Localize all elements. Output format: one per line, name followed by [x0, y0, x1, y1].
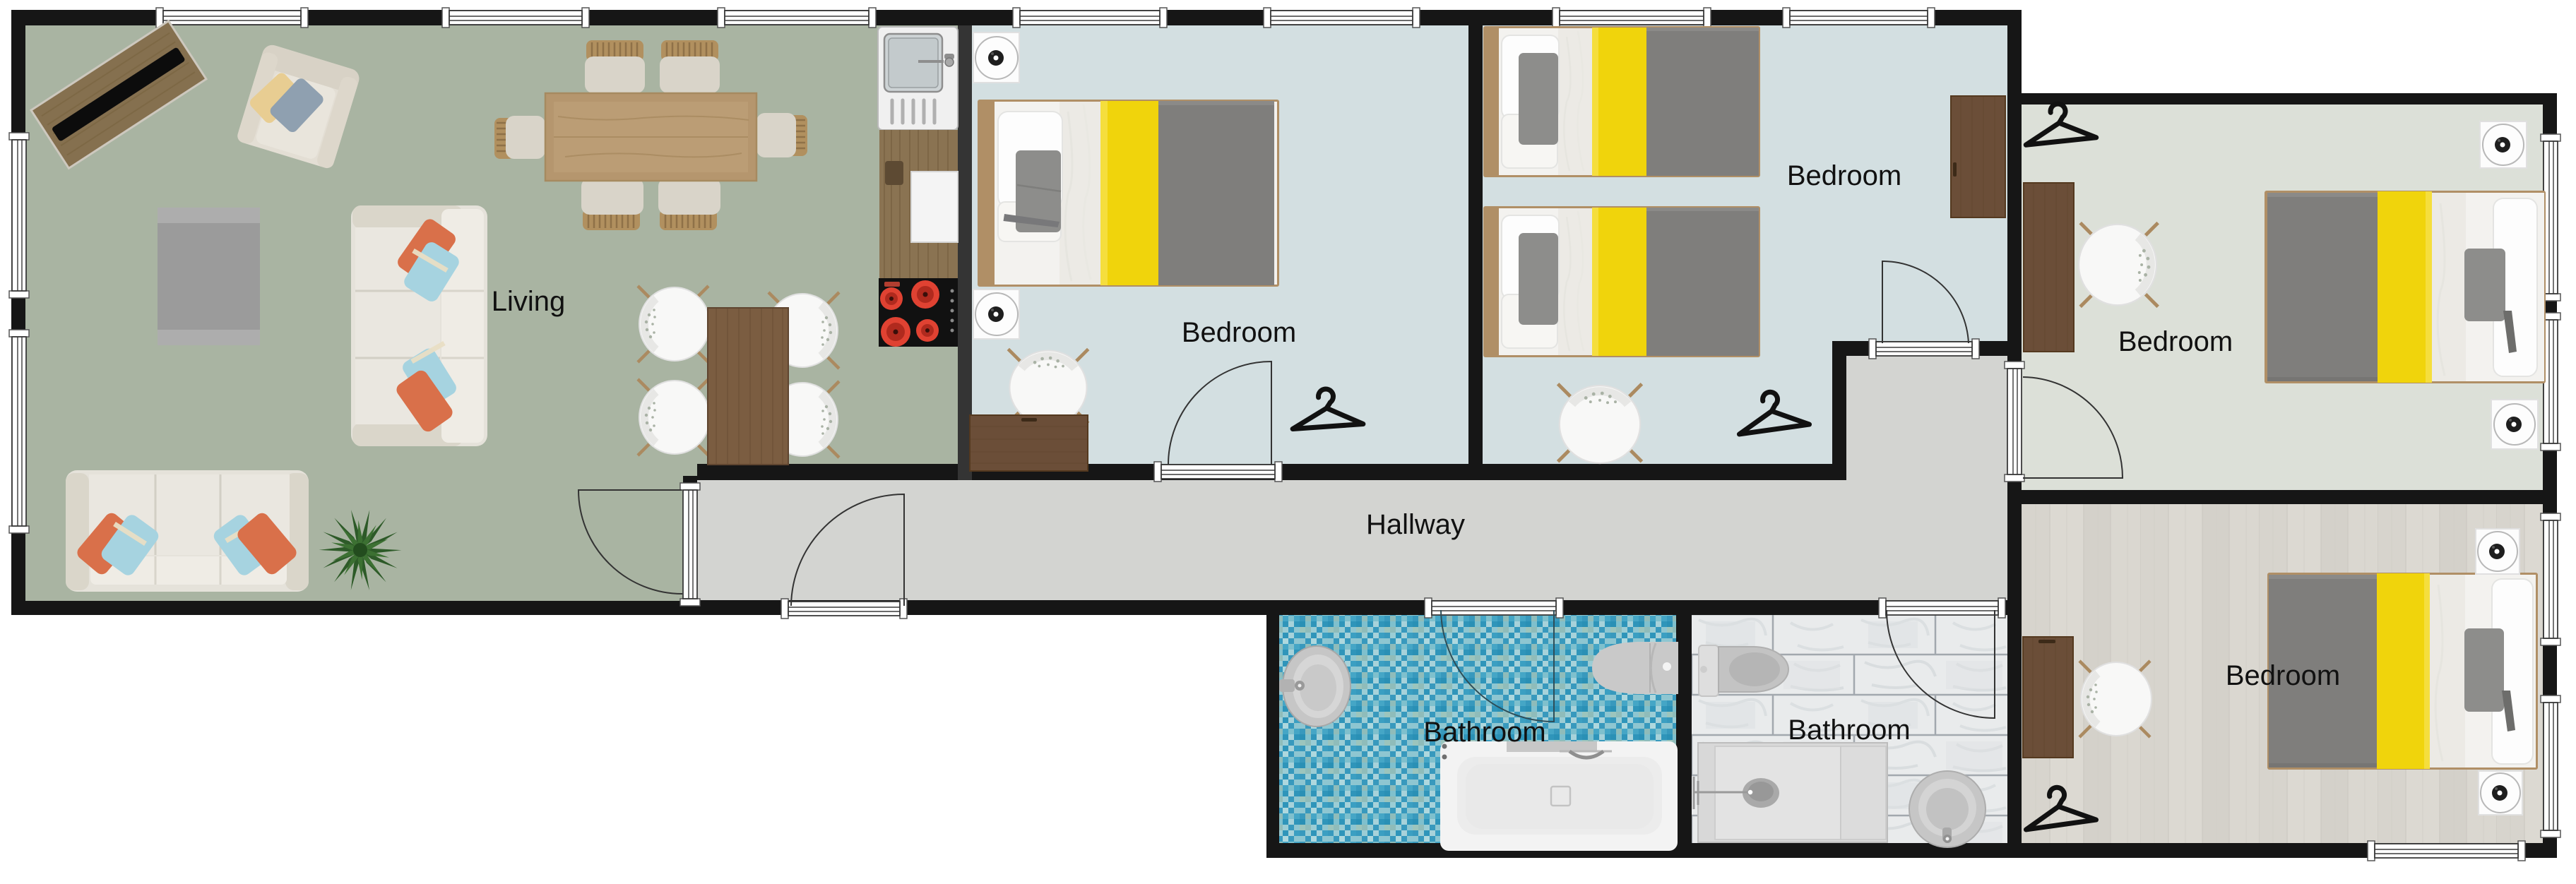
svg-text:Bedroom: Bedroom: [1787, 160, 1901, 191]
svg-text:Living: Living: [492, 286, 566, 317]
svg-text:Bedroom: Bedroom: [2226, 660, 2340, 691]
svg-text:Bedroom: Bedroom: [1182, 317, 1296, 348]
svg-text:Bathroom: Bathroom: [1788, 715, 1910, 746]
svg-text:Bedroom: Bedroom: [2118, 326, 2233, 357]
svg-text:Hallway: Hallway: [1366, 509, 1465, 540]
svg-text:Bathroom: Bathroom: [1423, 717, 1545, 748]
